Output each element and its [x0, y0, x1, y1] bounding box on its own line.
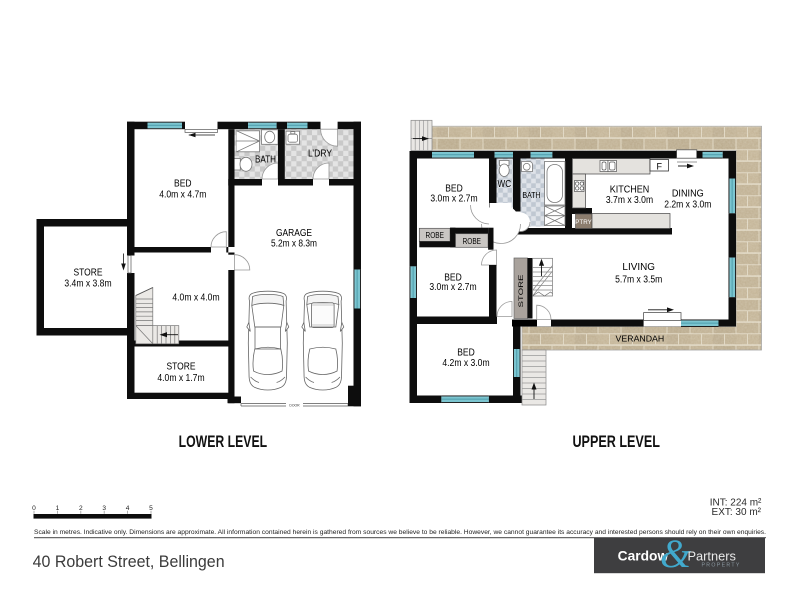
svg-text:UPPER LEVEL: UPPER LEVEL	[572, 432, 660, 451]
svg-text:STORE: STORE	[518, 275, 525, 308]
svg-text:3.7m x 3.0m: 3.7m x 3.0m	[606, 195, 653, 206]
svg-text:GARAGE: GARAGE	[276, 228, 312, 239]
svg-text:&: &	[660, 531, 691, 576]
svg-text:BED: BED	[174, 178, 192, 189]
svg-text:F: F	[656, 161, 662, 171]
svg-text:40 Robert Street, Bellingen: 40 Robert Street, Bellingen	[33, 552, 225, 571]
svg-text:DINING: DINING	[672, 189, 704, 200]
svg-text:BATH: BATH	[255, 155, 276, 166]
svg-text:VERANDAH: VERANDAH	[616, 333, 665, 343]
svg-text:STORE: STORE	[167, 362, 196, 373]
svg-text:L’DRY: L’DRY	[308, 149, 332, 160]
svg-text:4.0m x 4.0m: 4.0m x 4.0m	[172, 293, 219, 304]
svg-text:3.4m x 3.8m: 3.4m x 3.8m	[64, 279, 111, 290]
svg-text:Partners: Partners	[688, 549, 737, 564]
svg-text:4.2m x 3.0m: 4.2m x 3.0m	[442, 358, 489, 369]
svg-text:STORE: STORE	[74, 268, 103, 279]
svg-text:Scale in metres. Indicative on: Scale in metres. Indicative only. Dimens…	[34, 529, 766, 536]
svg-text:4.0m x 4.7m: 4.0m x 4.7m	[159, 189, 206, 200]
svg-text:PTRY: PTRY	[575, 219, 592, 226]
svg-text:3.0m x 2.7m: 3.0m x 2.7m	[429, 282, 476, 293]
svg-text:5.7m x 3.5m: 5.7m x 3.5m	[615, 275, 662, 286]
svg-text:ROBE: ROBE	[463, 237, 481, 246]
svg-text:EXT: 30 m²: EXT: 30 m²	[712, 507, 762, 518]
svg-text:WC: WC	[498, 179, 512, 190]
svg-text:LOWER LEVEL: LOWER LEVEL	[179, 432, 268, 451]
svg-text:BED: BED	[457, 348, 475, 359]
svg-text:BATH: BATH	[523, 191, 541, 200]
svg-text:LIVING: LIVING	[622, 262, 655, 273]
svg-text:3.0m x 2.7m: 3.0m x 2.7m	[430, 193, 477, 204]
svg-text:PROPERTY: PROPERTY	[702, 563, 741, 569]
svg-text:ROBE: ROBE	[426, 231, 444, 240]
svg-text:2.2m x 3.0m: 2.2m x 3.0m	[664, 200, 711, 211]
svg-text:4.0m x 1.7m: 4.0m x 1.7m	[157, 373, 204, 384]
svg-text:5.2m x 8.3m: 5.2m x 8.3m	[271, 239, 317, 250]
svg-text:DOOR: DOOR	[289, 403, 300, 407]
